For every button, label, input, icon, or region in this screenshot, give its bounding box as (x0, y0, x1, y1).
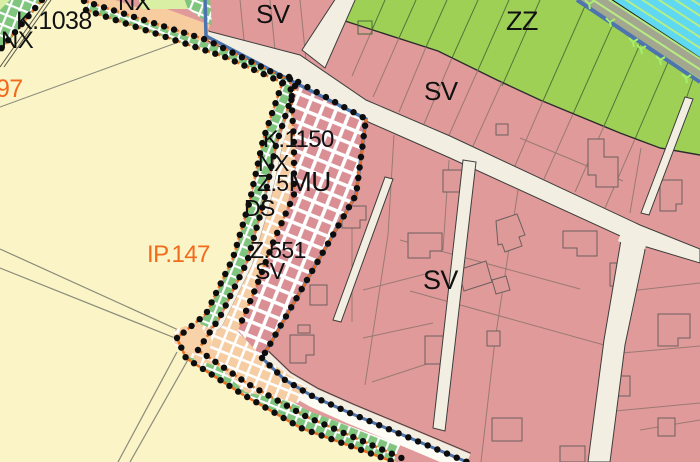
svg-text:DS: DS (244, 195, 275, 221)
svg-text:97: 97 (0, 75, 23, 103)
svg-text:SV: SV (423, 265, 458, 295)
svg-text:NX: NX (118, 0, 151, 16)
svg-text:K.1150: K.1150 (263, 126, 334, 153)
svg-text:IP.147: IP.147 (147, 241, 210, 268)
svg-text:SV: SV (256, 0, 291, 29)
svg-text:ZZ: ZZ (506, 6, 538, 36)
svg-text:Z.5MU: Z.5MU (257, 166, 331, 197)
svg-text:SV: SV (255, 258, 286, 284)
svg-text:NX: NX (1, 27, 34, 54)
svg-text:SV: SV (424, 76, 459, 106)
